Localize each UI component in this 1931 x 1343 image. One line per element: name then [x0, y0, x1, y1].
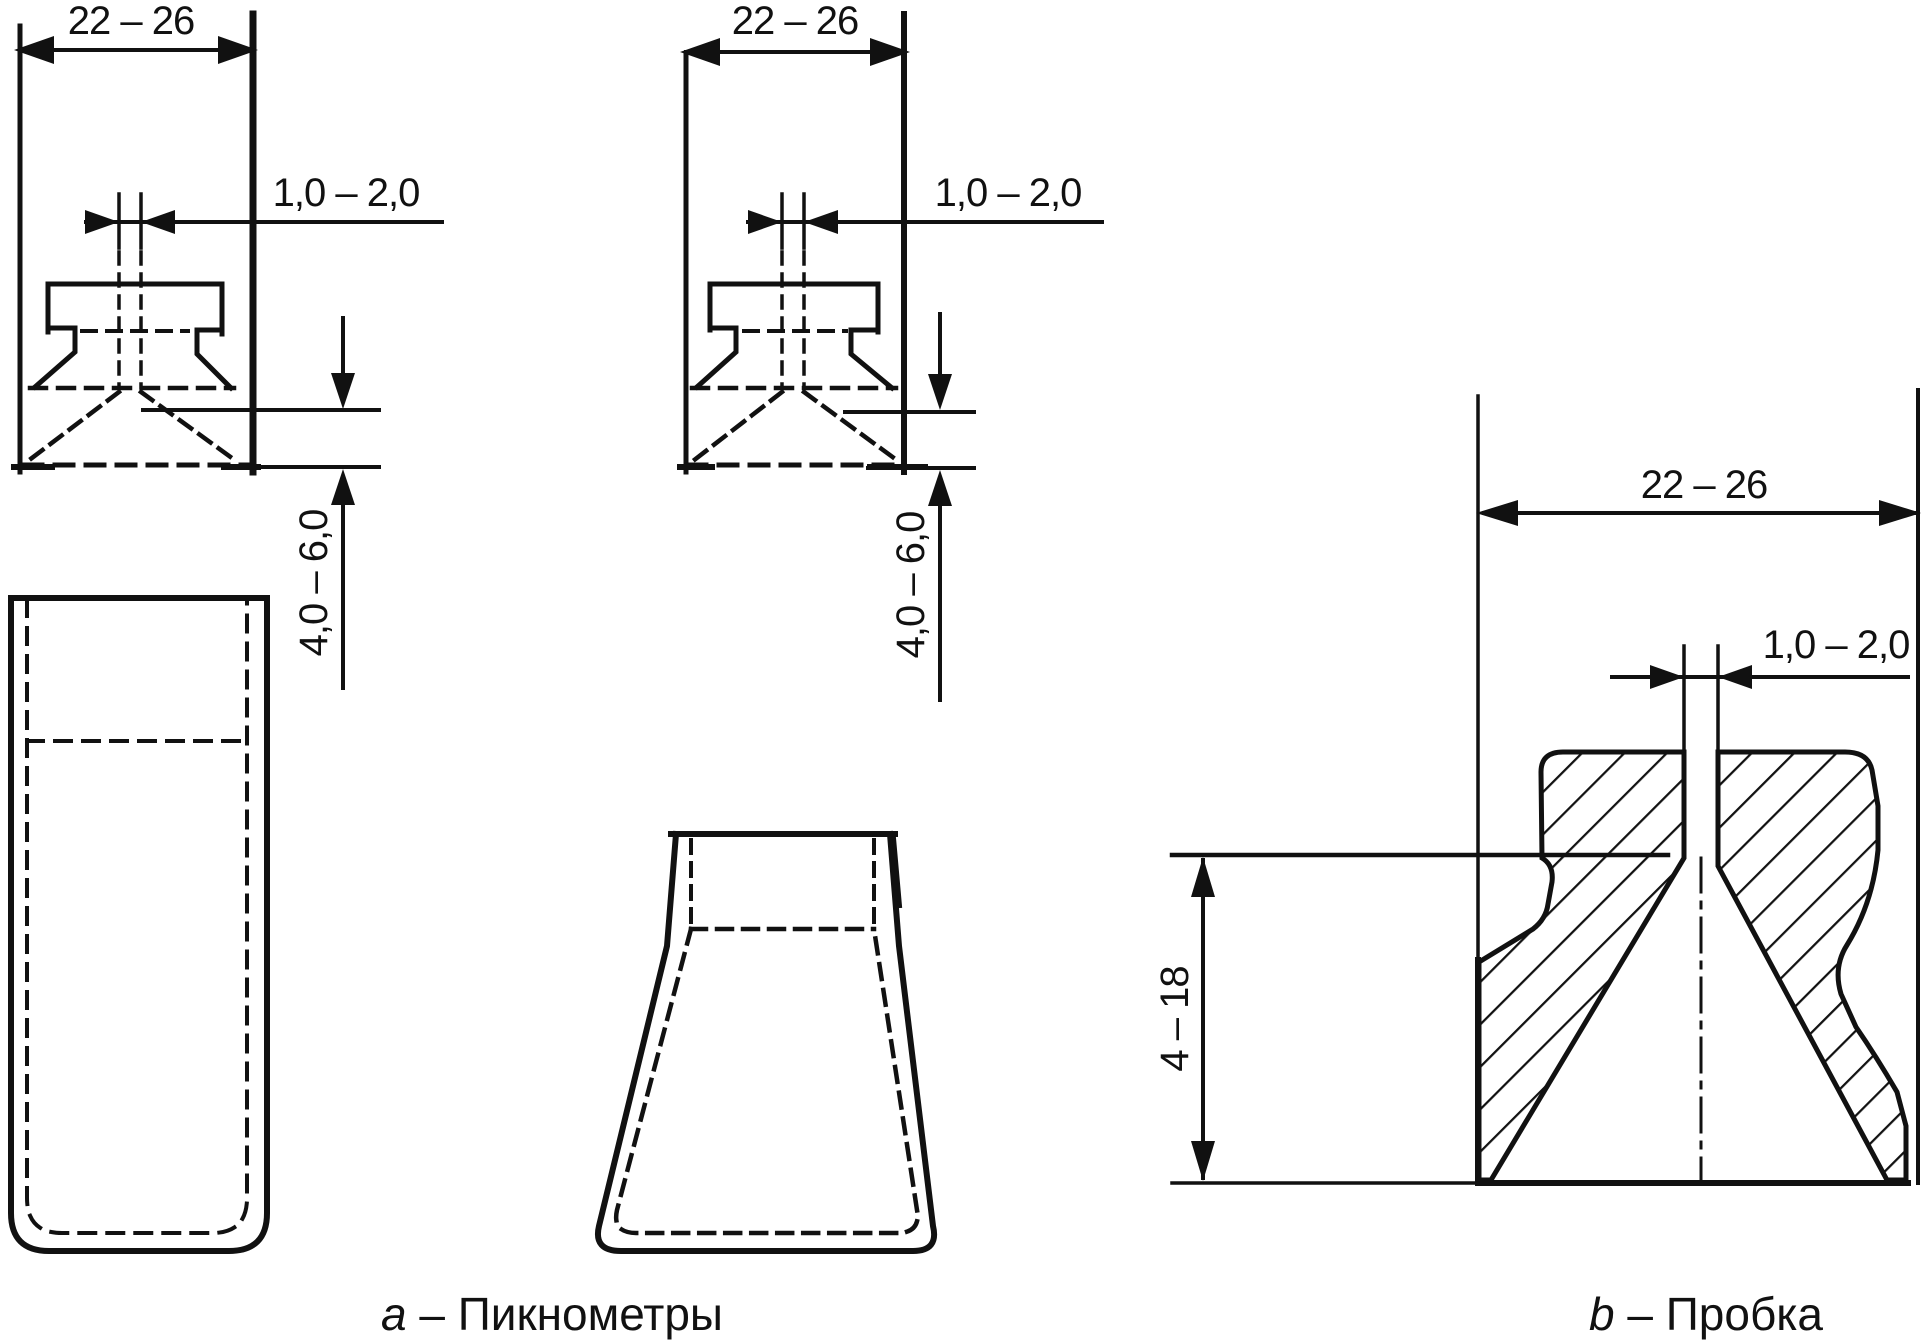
dim-label-stopper-head-width: 22 – 26	[1594, 464, 1814, 506]
arrow-down-icon	[928, 374, 952, 410]
dim-label-neck-width-2: 22 – 26	[685, 0, 905, 42]
arrow-down-icon	[1191, 1141, 1215, 1181]
dim-label-bottom-clearance-1: 4,0 – 6,0	[293, 473, 335, 693]
dim-label-stopper-capillary-bore: 1,0 – 2,0	[1726, 624, 1931, 666]
caption-figure-b: b – Пробка	[1456, 1290, 1931, 1338]
figure-canvas: 22 – 26 1,0 – 2,0 4,0 – 6,0 22 – 26 1,0 …	[0, 0, 1931, 1343]
arrow-left-icon	[1718, 665, 1752, 689]
caption-figure-a: a – Пикнометры	[302, 1290, 802, 1338]
caption-b-letter: b	[1589, 1288, 1615, 1340]
caption-a-letter: a	[381, 1288, 407, 1340]
arrow-right-icon	[748, 210, 782, 234]
arrow-up-icon	[1191, 857, 1215, 897]
arrow-right-icon	[1879, 500, 1921, 526]
dim-label-neck-width-1: 22 – 26	[21, 0, 241, 42]
arrow-down-icon	[331, 373, 355, 409]
dim-label-stopper-plug-depth: 4 – 18	[1154, 909, 1196, 1129]
arrow-left-icon	[141, 210, 175, 234]
arrow-left-icon	[804, 210, 838, 234]
dim-label-capillary-bore-1: 1,0 – 2,0	[236, 172, 456, 214]
arrow-left-icon	[1476, 500, 1518, 526]
pycnometer-1-body-cylindrical	[11, 598, 267, 1251]
stopper-glass-right	[1718, 752, 1906, 1180]
pycnometer-1-neck-section	[14, 14, 442, 688]
arrow-right-icon	[85, 210, 119, 234]
stopper-glass-left	[1479, 752, 1684, 1180]
arrow-right-icon	[1650, 665, 1684, 689]
dim-label-bottom-clearance-2: 4,0 – 6,0	[890, 475, 932, 695]
dim-label-capillary-bore-2: 1,0 – 2,0	[898, 172, 1118, 214]
pycnometer-2-body-conical	[598, 834, 934, 1251]
caption-b-text: – Пробка	[1615, 1288, 1823, 1340]
caption-a-text: – Пикнометры	[407, 1288, 723, 1340]
stopper-section	[1172, 390, 1921, 1183]
